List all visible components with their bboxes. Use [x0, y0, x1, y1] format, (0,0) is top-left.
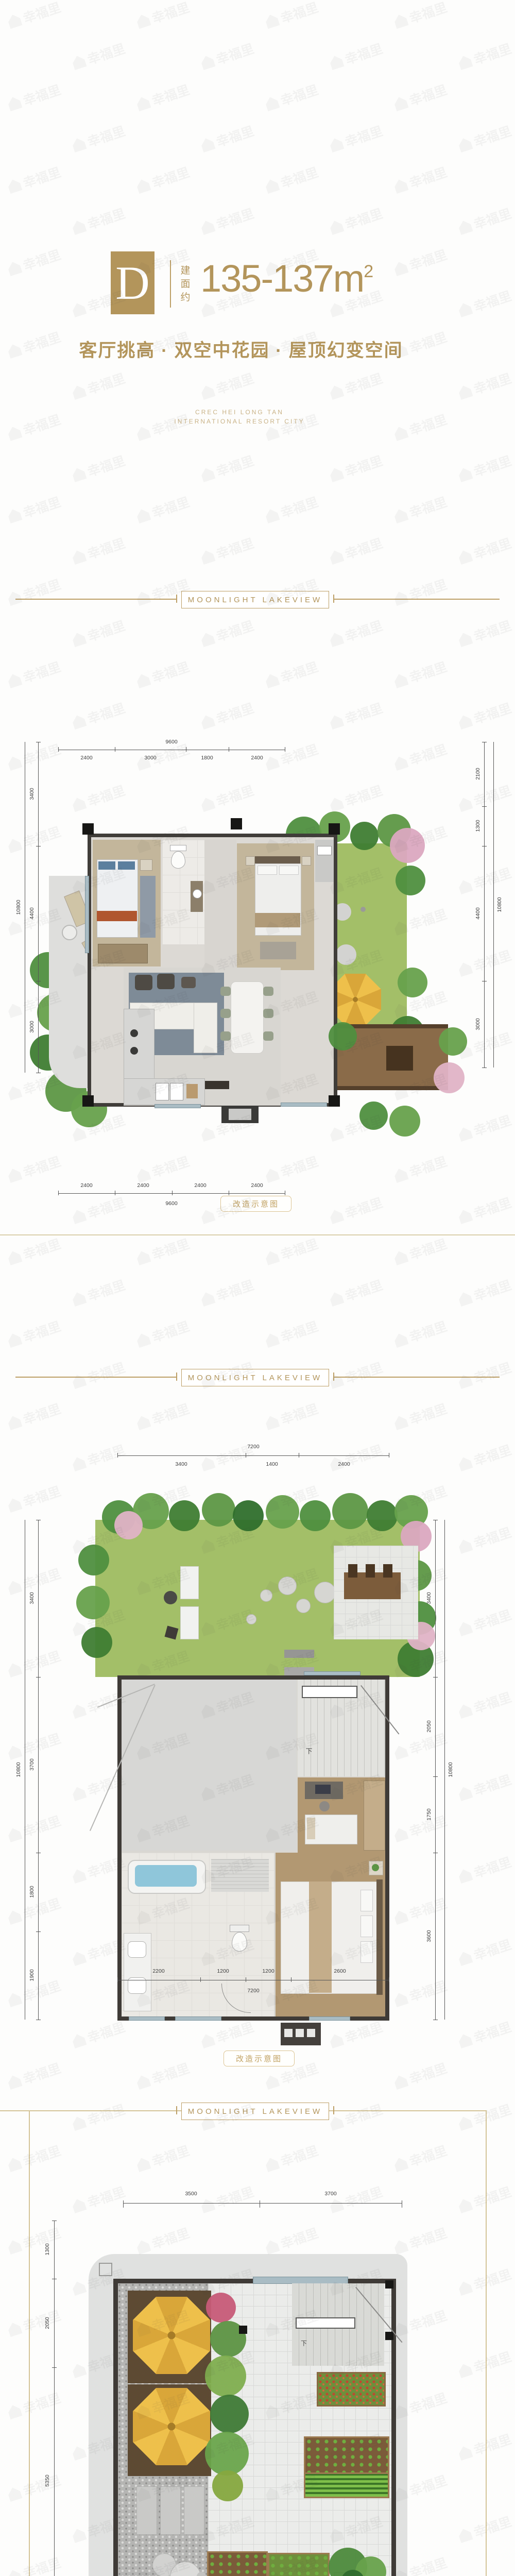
- dim-label: 1300: [475, 820, 481, 832]
- section3-title: MOONLIGHT LAKEVIEW: [181, 2103, 329, 2120]
- column-block: [385, 2280, 393, 2289]
- dim-line: [58, 750, 285, 750]
- stepping-stone: [278, 1577, 297, 1595]
- dim-label: 3400: [29, 1592, 35, 1604]
- bush-icon: [396, 866, 425, 895]
- column-block: [231, 818, 242, 829]
- pillow-icon: [257, 866, 277, 875]
- dim-label: 9600: [165, 739, 177, 745]
- dim-line: [484, 742, 485, 1067]
- dim-line: [38, 1520, 39, 2020]
- paver-mat: [184, 2486, 204, 2535]
- unit-type-letter: D: [115, 256, 149, 310]
- dim-label: 2400: [251, 755, 263, 761]
- dim-label: 3000: [475, 1018, 481, 1030]
- chair-icon: [263, 987, 273, 996]
- bush-icon: [233, 1500, 264, 1531]
- dim-label: 1300: [44, 2243, 50, 2255]
- pillow-icon: [360, 1916, 373, 1937]
- bed-blanket: [255, 913, 300, 927]
- bed-throw: [97, 911, 137, 921]
- window-icon: [129, 2016, 165, 2021]
- window-icon: [154, 1104, 201, 1108]
- sink-icon: [317, 846, 332, 855]
- stairs-down-label: 下: [305, 1746, 312, 1756]
- pillow-icon: [98, 861, 115, 870]
- dim-label: 3500: [185, 2191, 197, 2197]
- dim-label: 2400: [251, 1182, 263, 1189]
- bush-icon: [439, 1027, 467, 1056]
- dim-line: [117, 1455, 389, 1456]
- bush-icon: [76, 1586, 110, 1619]
- dim-label: 3000: [144, 755, 156, 761]
- hallway-area: [204, 840, 236, 968]
- bush-icon: [205, 2432, 249, 2476]
- pillow-icon: [118, 861, 135, 870]
- bush-icon: [169, 1500, 200, 1531]
- plant-icon: [372, 1864, 379, 1871]
- dim-label: 1800: [29, 1886, 35, 1897]
- section2-header-tick-left: [176, 1372, 177, 1381]
- unit-type-logo: D: [111, 251, 154, 314]
- section2-header-line-right: [334, 1377, 500, 1378]
- header-divider-line: [170, 260, 171, 308]
- toilet-icon: [230, 1925, 249, 1932]
- section3-frame-left: [29, 2110, 30, 2576]
- bush-icon: [359, 1101, 388, 1130]
- window-icon: [281, 1103, 327, 1107]
- dim-label: 4400: [29, 907, 35, 919]
- stair-railing: [302, 1686, 357, 1698]
- bush-icon: [329, 1022, 357, 1050]
- section1-header-line-right: [334, 599, 500, 600]
- chair-icon: [220, 1031, 231, 1041]
- area-label: 建面约: [180, 264, 191, 304]
- nightstand-icon: [246, 856, 255, 866]
- dim-label: 5350: [44, 2475, 50, 2486]
- headboard: [376, 1879, 383, 1995]
- dim-label: 3700: [29, 1758, 35, 1770]
- rug: [260, 942, 296, 959]
- tagline: 客厅挑高 · 双空中花园 · 屋顶幻变空间: [0, 336, 482, 362]
- rug: [140, 876, 156, 938]
- dim-label: 2400: [194, 1182, 206, 1189]
- umbrella-icon: [133, 2388, 210, 2465]
- deck-seat-icon: [386, 1046, 413, 1071]
- dim-line: [25, 1520, 25, 2020]
- dim-label: 7200: [247, 1444, 259, 1450]
- planter-bed-rows: [304, 2472, 389, 2498]
- pergola-bar: [337, 1086, 448, 1090]
- bush-icon: [332, 1493, 368, 1529]
- dim-line: [54, 2221, 55, 2576]
- stepping-stone: [314, 1582, 336, 1603]
- garden-table-icon: [164, 1591, 177, 1604]
- bush-icon: [398, 968, 427, 997]
- section2-header-line-left: [15, 1377, 176, 1378]
- dim-label: 3000: [29, 1021, 35, 1032]
- sun-lounger-icon: [180, 1606, 199, 1639]
- dim-label: 1750: [426, 1808, 432, 1820]
- pillow-icon: [279, 866, 299, 875]
- bush-icon: [350, 822, 379, 850]
- dim-line: [444, 1520, 445, 2020]
- umbrella-icon: [330, 974, 381, 1025]
- bush-icon: [210, 2395, 249, 2433]
- column-block: [82, 823, 94, 835]
- cutting-board: [186, 1084, 198, 1098]
- caption-badge: 改造示意图: [224, 2050, 295, 2066]
- patio-table-icon: [62, 925, 77, 940]
- pillow-icon: [360, 1890, 373, 1911]
- area-superscript: 2: [364, 262, 373, 281]
- section1-title: MOONLIGHT LAKEVIEW: [181, 591, 329, 608]
- dim-line: [123, 2203, 402, 2204]
- bed-runner: [309, 1882, 332, 1993]
- stepping-stone: [360, 907, 366, 912]
- watermark-layer: 幸福里 幸福里: [0, 0, 515, 2576]
- sink-icon: [156, 1083, 169, 1100]
- window-icon: [85, 876, 89, 953]
- subtitle-english-1: CREC HEI LONG TAN: [0, 409, 479, 416]
- pergola-bar: [253, 2277, 348, 2284]
- dim-label: 1800: [201, 755, 213, 761]
- dim-label: 2200: [152, 1968, 164, 1974]
- dim-label: 3700: [324, 2191, 336, 2197]
- section-divider-line: [0, 1234, 515, 1235]
- column-block: [329, 823, 340, 835]
- sink-icon: [128, 1941, 146, 1958]
- paver-mat: [136, 2486, 157, 2535]
- roof-void-area: [122, 1680, 297, 1851]
- bush-icon: [300, 1500, 331, 1531]
- bed-icon: [97, 859, 138, 938]
- dim-label: 2100: [475, 768, 481, 779]
- stepping-stone: [296, 1599, 311, 1613]
- section3-frame-right: [486, 2110, 487, 2576]
- caption-badge: 改造示意图: [220, 1196, 291, 1212]
- section3-header-tick-left: [176, 2106, 177, 2114]
- nightstand-icon: [302, 856, 311, 866]
- planter-bed-crops: [268, 2553, 330, 2576]
- dim-label: 4400: [475, 907, 481, 919]
- bush-icon: [205, 2355, 246, 2397]
- dim-line: [25, 742, 25, 1073]
- dim-label: 2400: [80, 1182, 92, 1189]
- bathtub-water: [135, 1865, 197, 1887]
- blossom-tree-icon: [390, 828, 425, 863]
- bush-icon: [367, 1500, 398, 1531]
- column-block: [239, 2326, 247, 2334]
- chair-icon: [220, 987, 231, 996]
- step-stone: [284, 1650, 314, 1658]
- window-icon: [175, 2016, 221, 2021]
- dim-label: 2400: [338, 1461, 350, 1467]
- stove-burner-icon: [130, 1029, 138, 1037]
- nightstand-icon: [140, 859, 152, 871]
- toilet-icon: [171, 851, 185, 869]
- toilet-icon: [170, 845, 186, 851]
- sofa-chaise: [194, 1003, 217, 1053]
- planter-bed-crops: [304, 2436, 389, 2474]
- dim-label: 1900: [29, 1969, 35, 1981]
- column-block: [385, 2332, 393, 2340]
- chair-icon: [263, 1031, 273, 1041]
- entrance-step: [229, 1109, 251, 1120]
- pillow-icon: [360, 1941, 373, 1963]
- wardrobe-icon: [98, 944, 148, 963]
- dim-line: [435, 1520, 436, 2020]
- section2-title: MOONLIGHT LAKEVIEW: [181, 1369, 329, 1386]
- sun-lounger-icon: [180, 1566, 199, 1599]
- dim-label: 1200: [217, 1968, 229, 1974]
- dim-line: [117, 1980, 389, 1980]
- page: { "watermark": { "text": "幸福里" }, "heade…: [0, 0, 515, 2576]
- ottoman-icon: [181, 977, 196, 988]
- window-icon: [309, 2016, 350, 2021]
- monitor-icon: [315, 1785, 331, 1794]
- stairs-down-label: 下: [301, 2339, 307, 2348]
- dim-label: 10800: [448, 1762, 454, 1777]
- dim-label: 9600: [165, 1200, 177, 1207]
- dim-label: 10800: [15, 900, 22, 914]
- dim-label: 2400: [137, 1182, 149, 1189]
- ac-vent: [307, 2029, 315, 2037]
- planter-bed-crops: [207, 2551, 268, 2576]
- section3-header-tick-right: [333, 2106, 334, 2114]
- armchair-icon: [135, 975, 152, 990]
- headboard: [255, 856, 300, 863]
- armchair-icon: [157, 974, 175, 989]
- corner-mark: [99, 2263, 112, 2276]
- bush-icon: [266, 1495, 299, 1529]
- column-block: [329, 1095, 340, 1107]
- dim-label: 3400: [426, 1592, 432, 1604]
- stepping-stone: [260, 1589, 272, 1602]
- paver-mat: [160, 2486, 181, 2535]
- bush-icon: [212, 2470, 243, 2501]
- ac-vent: [296, 2029, 304, 2037]
- dim-label: 3400: [175, 1461, 187, 1467]
- toilet-icon: [232, 1932, 247, 1952]
- dim-label: 3600: [426, 1930, 432, 1942]
- dim-label: 2400: [80, 755, 92, 761]
- dim-label: 2050: [44, 2317, 50, 2329]
- chair-icon: [263, 1009, 273, 1018]
- subtitle-english-2: INTERNATIONAL RESORT CITY: [0, 418, 479, 425]
- dim-line: [38, 742, 39, 1073]
- stepping-stone: [336, 944, 356, 965]
- sink-icon: [170, 1083, 183, 1100]
- dim-label: 2600: [334, 1968, 346, 1974]
- stepping-stone: [246, 1614, 256, 1624]
- wardrobe-icon: [364, 1781, 385, 1851]
- column-block: [82, 1095, 94, 1107]
- flower-bush-icon: [206, 2293, 236, 2323]
- dim-label: 3400: [29, 788, 35, 800]
- stair-railing: [296, 2317, 355, 2329]
- bush-icon: [202, 1493, 235, 1527]
- section1-header-tick-left: [176, 595, 177, 603]
- stool-icon: [348, 1564, 357, 1578]
- dim-label: 10800: [496, 897, 503, 912]
- bush-icon: [81, 1627, 112, 1658]
- umbrella-icon: [133, 2297, 210, 2374]
- stool-icon: [366, 1564, 375, 1578]
- dim-label: 7200: [247, 1988, 259, 1994]
- stove-burner-icon: [130, 1047, 138, 1055]
- sink-icon: [193, 889, 202, 899]
- shower-mat-icon: [211, 1859, 269, 1892]
- dim-label: 1200: [262, 1968, 274, 1974]
- desk-chair-icon: [319, 1801, 330, 1811]
- area-value: 135-137m2: [200, 257, 373, 300]
- ac-vent: [284, 2029, 293, 2037]
- section1-header-line-left: [15, 599, 176, 600]
- dim-label: 10800: [15, 1762, 22, 1777]
- blossom-tree-icon: [114, 1511, 143, 1539]
- pillow-icon: [307, 1818, 315, 1839]
- stool-icon: [383, 1564, 392, 1578]
- dim-line: [493, 742, 494, 1067]
- bush-icon: [389, 1106, 420, 1137]
- blossom-tree-icon: [434, 1062, 465, 1093]
- planter-bed-flowers: [317, 2372, 386, 2406]
- dining-table-icon: [231, 981, 264, 1054]
- window-icon: [304, 1671, 360, 1675]
- bush-icon: [78, 1545, 109, 1575]
- dim-label: 2050: [426, 1720, 432, 1732]
- chair-icon: [220, 1009, 231, 1018]
- dim-label: 1400: [266, 1461, 278, 1467]
